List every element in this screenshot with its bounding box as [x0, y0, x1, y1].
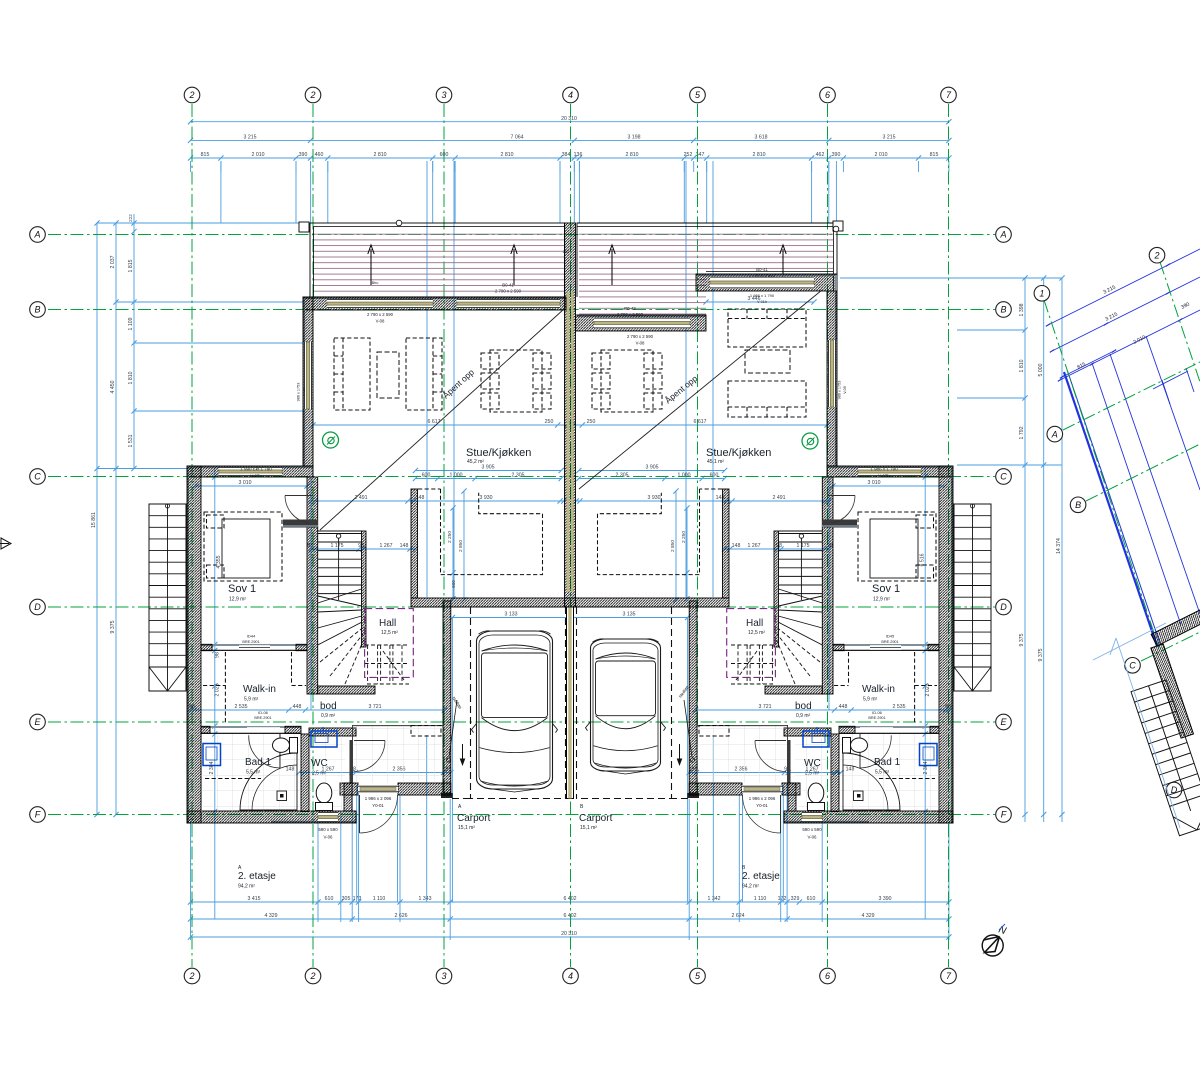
svg-text:Stue/Kjøkken: Stue/Kjøkken [466, 447, 531, 459]
svg-text:12,9 m²: 12,9 m² [873, 597, 890, 603]
svg-text:2 810: 2 810 [501, 152, 514, 158]
svg-text:3 010: 3 010 [868, 480, 881, 486]
svg-text:94,2 m²: 94,2 m² [238, 884, 255, 890]
svg-text:V-06: V-06 [323, 835, 333, 840]
svg-text:E: E [1000, 717, 1007, 727]
svg-text:F: F [35, 810, 41, 820]
svg-text:2 810: 2 810 [753, 152, 766, 158]
svg-text:2 037: 2 037 [110, 255, 116, 268]
svg-text:2. etasje: 2. etasje [742, 871, 780, 882]
svg-text:2,5 m²: 2,5 m² [805, 771, 820, 777]
svg-text:4: 4 [568, 971, 573, 981]
svg-text:2 305: 2 305 [512, 473, 525, 479]
svg-text:1 175: 1 175 [331, 543, 344, 549]
svg-text:1 110: 1 110 [373, 896, 386, 902]
svg-text:Bad 1: Bad 1 [245, 757, 272, 768]
svg-text:Carport: Carport [457, 813, 491, 824]
svg-text:252: 252 [684, 152, 693, 158]
svg-text:3 215: 3 215 [883, 135, 896, 141]
svg-text:590 x 590: 590 x 590 [318, 827, 338, 832]
svg-text:610: 610 [807, 896, 816, 902]
svg-text:BRE.2901: BRE.2901 [881, 640, 898, 644]
svg-text:V-09: V-09 [302, 388, 306, 396]
svg-text:1: 1 [1039, 289, 1044, 299]
svg-text:347: 347 [696, 152, 705, 158]
svg-text:1 815: 1 815 [128, 259, 134, 272]
svg-text:5 000: 5 000 [1038, 363, 1044, 376]
svg-text:Y0-01: Y0-01 [372, 803, 384, 808]
svg-text:3 905: 3 905 [646, 465, 659, 471]
svg-text:D: D [1000, 602, 1007, 612]
svg-text:2: 2 [188, 90, 194, 100]
svg-text:815: 815 [201, 152, 210, 158]
svg-text:2,5 m²: 2,5 m² [312, 771, 327, 777]
svg-text:2 626: 2 626 [395, 913, 408, 919]
svg-text:3 135: 3 135 [623, 612, 636, 618]
svg-text:390: 390 [832, 152, 841, 158]
svg-text:Bhu: Bhu [372, 281, 379, 285]
svg-text:2 305: 2 305 [616, 473, 629, 479]
svg-text:2 850: 2 850 [670, 540, 676, 552]
svg-text:ID-06: ID-06 [258, 710, 269, 715]
svg-text:3 618: 3 618 [755, 135, 768, 141]
svg-text:12,5 m²: 12,5 m² [381, 630, 398, 636]
svg-text:2 790 x 2 590: 2 790 x 2 590 [367, 312, 394, 317]
svg-text:1 792: 1 792 [1019, 426, 1025, 439]
svg-text:600: 600 [422, 473, 431, 479]
svg-text:1 810: 1 810 [128, 371, 134, 384]
svg-text:3 721: 3 721 [369, 704, 382, 710]
svg-text:3 721: 3 721 [759, 704, 772, 710]
svg-text:222: 222 [128, 214, 133, 222]
svg-text:172: 172 [778, 896, 787, 902]
svg-text:3 198: 3 198 [628, 135, 641, 141]
svg-text:BRE.2901: BRE.2901 [242, 640, 259, 644]
svg-text:136: 136 [574, 152, 583, 158]
svg-text:bod: bod [795, 701, 812, 712]
svg-text:B0-41: B0-41 [756, 267, 768, 272]
svg-text:ID45: ID45 [886, 634, 895, 639]
svg-text:5,9 m²: 5,9 m² [244, 697, 259, 703]
svg-text:F: F [1001, 810, 1007, 820]
svg-text:ID-06: ID-06 [872, 710, 883, 715]
svg-text:250: 250 [545, 419, 554, 425]
svg-text:4 450: 4 450 [110, 380, 116, 393]
svg-text:1 996 x 2 096: 1 996 x 2 096 [749, 796, 776, 801]
svg-text:V-06: V-06 [807, 835, 817, 840]
svg-text:Y0-01: Y0-01 [756, 803, 768, 808]
svg-text:45,1 m²: 45,1 m² [707, 459, 724, 465]
svg-text:9 375: 9 375 [1038, 648, 1044, 661]
svg-text:V-07v: V-07v [250, 474, 262, 479]
svg-text:1 398: 1 398 [1019, 303, 1025, 316]
svg-text:1 000: 1 000 [450, 473, 463, 479]
svg-text:2 010: 2 010 [875, 152, 888, 158]
svg-text:20 310: 20 310 [561, 931, 577, 937]
svg-text:D: D [34, 602, 41, 612]
svg-text:94,2 m²: 94,2 m² [742, 884, 759, 890]
svg-text:WC: WC [311, 758, 328, 769]
svg-text:2 790 x 2 590: 2 790 x 2 590 [617, 312, 644, 317]
svg-text:329: 329 [791, 896, 800, 902]
svg-text:610: 610 [325, 896, 334, 902]
svg-text:Walk-in: Walk-in [243, 684, 276, 695]
svg-text:Carport: Carport [579, 813, 613, 824]
svg-text:1 267: 1 267 [748, 543, 761, 549]
svg-text:9 375: 9 375 [110, 620, 116, 633]
svg-text:3: 3 [441, 90, 446, 100]
svg-text:Hall: Hall [746, 618, 763, 629]
svg-text:15,1 m²: 15,1 m² [458, 825, 475, 831]
svg-text:B: B [1000, 305, 1006, 315]
svg-text:Stue/Kjøkken: Stue/Kjøkken [706, 447, 771, 459]
svg-text:E: E [34, 717, 41, 727]
svg-text:Hall: Hall [379, 618, 396, 629]
svg-text:2 535: 2 535 [235, 704, 248, 710]
svg-text:1 990 Ekt 1 790: 1 990 Ekt 1 790 [240, 467, 272, 472]
svg-text:6 617: 6 617 [694, 419, 707, 425]
svg-text:45,2 m²: 45,2 m² [467, 459, 484, 465]
svg-text:0,9 m²: 0,9 m² [796, 713, 811, 719]
svg-text:3 415: 3 415 [248, 896, 261, 902]
svg-text:2: 2 [188, 971, 194, 981]
svg-text:2 790 x 2 590: 2 790 x 2 590 [627, 334, 654, 339]
svg-text:Walk-in: Walk-in [862, 684, 895, 695]
svg-text:WC: WC [804, 758, 821, 769]
svg-text:ID44: ID44 [247, 634, 256, 639]
svg-text:2. etasje: 2. etasje [238, 871, 276, 882]
svg-text:V-09: V-09 [843, 386, 847, 394]
svg-text:1 175: 1 175 [797, 543, 810, 549]
svg-text:1 810: 1 810 [1019, 359, 1025, 372]
svg-text:C: C [1129, 661, 1136, 671]
svg-text:1 343: 1 343 [419, 896, 432, 902]
svg-text:148: 148 [732, 543, 741, 549]
svg-text:3 215: 3 215 [244, 135, 257, 141]
svg-text:305: 305 [342, 896, 351, 902]
svg-text:3 010: 3 010 [239, 480, 252, 486]
svg-text:460: 460 [315, 152, 324, 158]
svg-text:2 790 x 2 590: 2 790 x 2 590 [495, 289, 522, 294]
svg-text:V-01h: V-01h [757, 300, 767, 304]
svg-text:3 905: 3 905 [482, 465, 495, 471]
svg-text:Sov 1: Sov 1 [228, 583, 256, 595]
svg-text:V-07h: V-07h [878, 474, 890, 479]
svg-text:3: 3 [441, 971, 446, 981]
svg-text:5,9 m²: 5,9 m² [863, 697, 878, 703]
svg-text:12,9 m²: 12,9 m² [229, 597, 246, 603]
svg-text:1 996 x 2 096: 1 996 x 2 096 [365, 796, 392, 801]
svg-text:1 109: 1 109 [128, 317, 134, 330]
svg-text:BRE.2901: BRE.2901 [254, 716, 271, 720]
svg-text:6: 6 [825, 90, 830, 100]
svg-text:V-08: V-08 [636, 341, 645, 346]
svg-text:2 624: 2 624 [732, 913, 745, 919]
svg-text:2 491: 2 491 [355, 495, 368, 501]
svg-text:148: 148 [400, 543, 409, 549]
svg-text:384: 384 [562, 152, 571, 158]
svg-text:V-08: V-08 [376, 319, 385, 324]
svg-text:15 861: 15 861 [91, 512, 97, 528]
svg-text:2 491: 2 491 [773, 495, 786, 501]
svg-text:448: 448 [839, 704, 848, 710]
svg-text:C: C [34, 472, 41, 482]
svg-text:C: C [1000, 472, 1007, 482]
svg-text:B: B [34, 305, 40, 315]
svg-text:1 342: 1 342 [708, 896, 721, 902]
svg-text:BRE.2901: BRE.2901 [868, 716, 885, 720]
svg-text:A: A [33, 230, 40, 240]
svg-text:986 x 1753: 986 x 1753 [838, 381, 842, 400]
svg-text:815: 815 [930, 152, 939, 158]
svg-text:2 250: 2 250 [681, 531, 687, 543]
svg-text:1 986 x 1 790: 1 986 x 1 790 [750, 293, 775, 298]
svg-text:0,9 m²: 0,9 m² [321, 713, 336, 719]
svg-text:4 355: 4 355 [216, 555, 222, 568]
svg-text:6: 6 [825, 971, 830, 981]
svg-text:B: B [1075, 500, 1081, 510]
svg-text:20 310: 20 310 [561, 116, 577, 122]
svg-text:3 930: 3 930 [480, 495, 493, 501]
svg-text:Bad 1: Bad 1 [874, 757, 901, 768]
svg-text:3 390: 3 390 [879, 896, 892, 902]
svg-text:B0-42: B0-42 [624, 306, 636, 311]
svg-text:600: 600 [451, 580, 456, 588]
svg-text:1 110: 1 110 [754, 896, 767, 902]
svg-text:4: 4 [568, 90, 573, 100]
svg-text:1 531: 1 531 [128, 434, 134, 447]
svg-text:4 329: 4 329 [862, 913, 875, 919]
svg-text:2: 2 [309, 90, 315, 100]
svg-text:2: 2 [309, 971, 315, 981]
svg-text:4 329: 4 329 [265, 913, 278, 919]
svg-text:9 375: 9 375 [1019, 633, 1025, 646]
svg-text:3 930: 3 930 [648, 495, 661, 501]
svg-text:3 133: 3 133 [505, 612, 518, 618]
svg-text:12,5 m²: 12,5 m² [748, 630, 765, 636]
svg-text:1 986 x 1 790: 1 986 x 1 790 [870, 467, 898, 472]
svg-text:7 064: 7 064 [511, 135, 524, 141]
svg-text:2 790 x 2 590: 2 790 x 2 590 [749, 273, 776, 278]
svg-text:bod: bod [320, 701, 337, 712]
svg-text:986 x 1753: 986 x 1753 [297, 383, 301, 402]
svg-text:5,5 m²: 5,5 m² [875, 770, 890, 776]
svg-text:2 250: 2 250 [447, 531, 453, 543]
svg-text:390: 390 [299, 152, 308, 158]
svg-text:250: 250 [563, 249, 570, 254]
svg-text:98: 98 [215, 652, 221, 658]
svg-text:2 810: 2 810 [626, 152, 639, 158]
svg-text:2: 2 [1153, 250, 1159, 260]
svg-text:600: 600 [710, 473, 719, 479]
svg-text:448: 448 [293, 704, 302, 710]
svg-text:5,5 m²: 5,5 m² [246, 770, 261, 776]
svg-text:1 267: 1 267 [380, 543, 393, 549]
svg-text:14 374: 14 374 [1056, 538, 1062, 554]
svg-text:A: A [1051, 429, 1058, 439]
svg-text:590 x 590: 590 x 590 [802, 827, 822, 832]
svg-text:2 850: 2 850 [458, 540, 464, 552]
svg-text:2 810: 2 810 [374, 152, 387, 158]
svg-text:1 000: 1 000 [678, 473, 691, 479]
svg-text:15,1 m²: 15,1 m² [580, 825, 597, 831]
svg-text:2 010: 2 010 [252, 152, 265, 158]
svg-text:2 535: 2 535 [893, 704, 906, 710]
svg-text:250: 250 [587, 419, 596, 425]
svg-text:A: A [999, 230, 1006, 240]
svg-text:B0-41: B0-41 [502, 283, 514, 288]
svg-text:Sov 1: Sov 1 [872, 583, 900, 595]
svg-text:462: 462 [816, 152, 825, 158]
